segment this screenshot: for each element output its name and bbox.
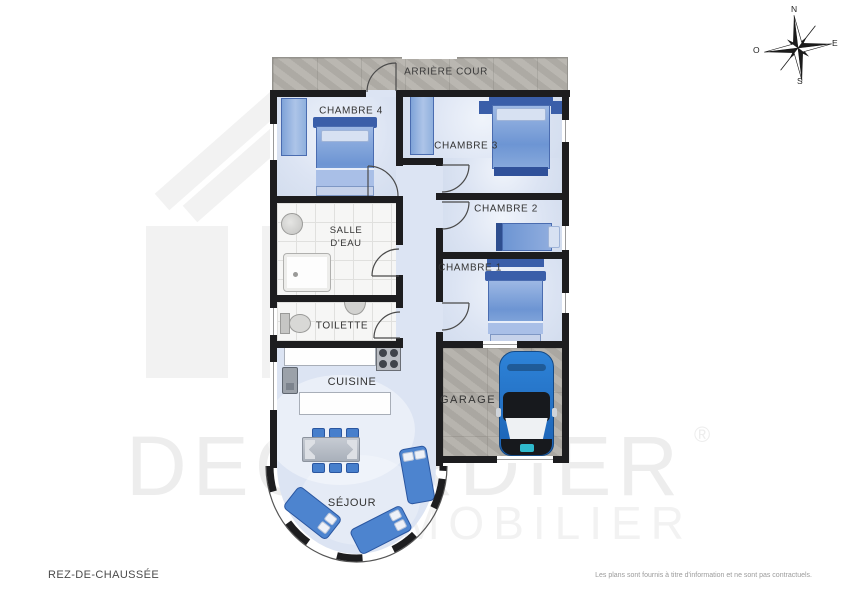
compass-south-label: S <box>797 76 803 86</box>
room-label-salle-deau: SALLE D'EAU <box>330 224 363 250</box>
room-label-salle-deau-line2: D'EAU <box>330 237 363 250</box>
room-label-chambre-3: CHAMBRE 3 <box>434 141 498 152</box>
room-label-toilette: TOILETTE <box>316 321 368 332</box>
floor-plan-canvas: DECORDIER ® IMMOBILIER <box>0 0 848 600</box>
room-label-chambre-4: CHAMBRE 4 <box>319 106 383 117</box>
plan-overlay <box>0 0 848 600</box>
bay-wall-segment <box>337 556 363 558</box>
door-arc <box>442 303 469 330</box>
door-arc <box>367 63 396 92</box>
door-arc <box>368 166 398 196</box>
door-arc <box>442 165 469 192</box>
door-swings <box>367 63 469 338</box>
room-label-chambre-2: CHAMBRE 2 <box>474 204 538 215</box>
compass-east-label: E <box>832 38 838 48</box>
bay-outer-line <box>266 466 447 562</box>
room-label-arriere-cour: ARRIÈRE COUR <box>404 67 488 78</box>
door-arc <box>374 312 400 338</box>
door-arc <box>372 249 399 276</box>
bay-wall-segment <box>270 466 273 491</box>
room-label-chambre-1: CHAMBRE 1 <box>438 263 502 274</box>
room-label-cuisine: CUISINE <box>328 376 377 388</box>
room-label-sejour: SÉJOUR <box>328 497 376 509</box>
room-label-garage: GARAGE <box>440 394 496 406</box>
bay-wall-segment <box>434 479 443 508</box>
compass-north-label: N <box>791 4 797 14</box>
door-arc <box>442 202 469 229</box>
floor-title: REZ-DE-CHAUSSÉE <box>48 569 159 581</box>
disclaimer-text: Les plans sont fournis à titre d'informa… <box>595 572 812 579</box>
room-label-salle-deau-line1: SALLE <box>330 224 363 237</box>
compass-west-label: O <box>753 45 760 55</box>
